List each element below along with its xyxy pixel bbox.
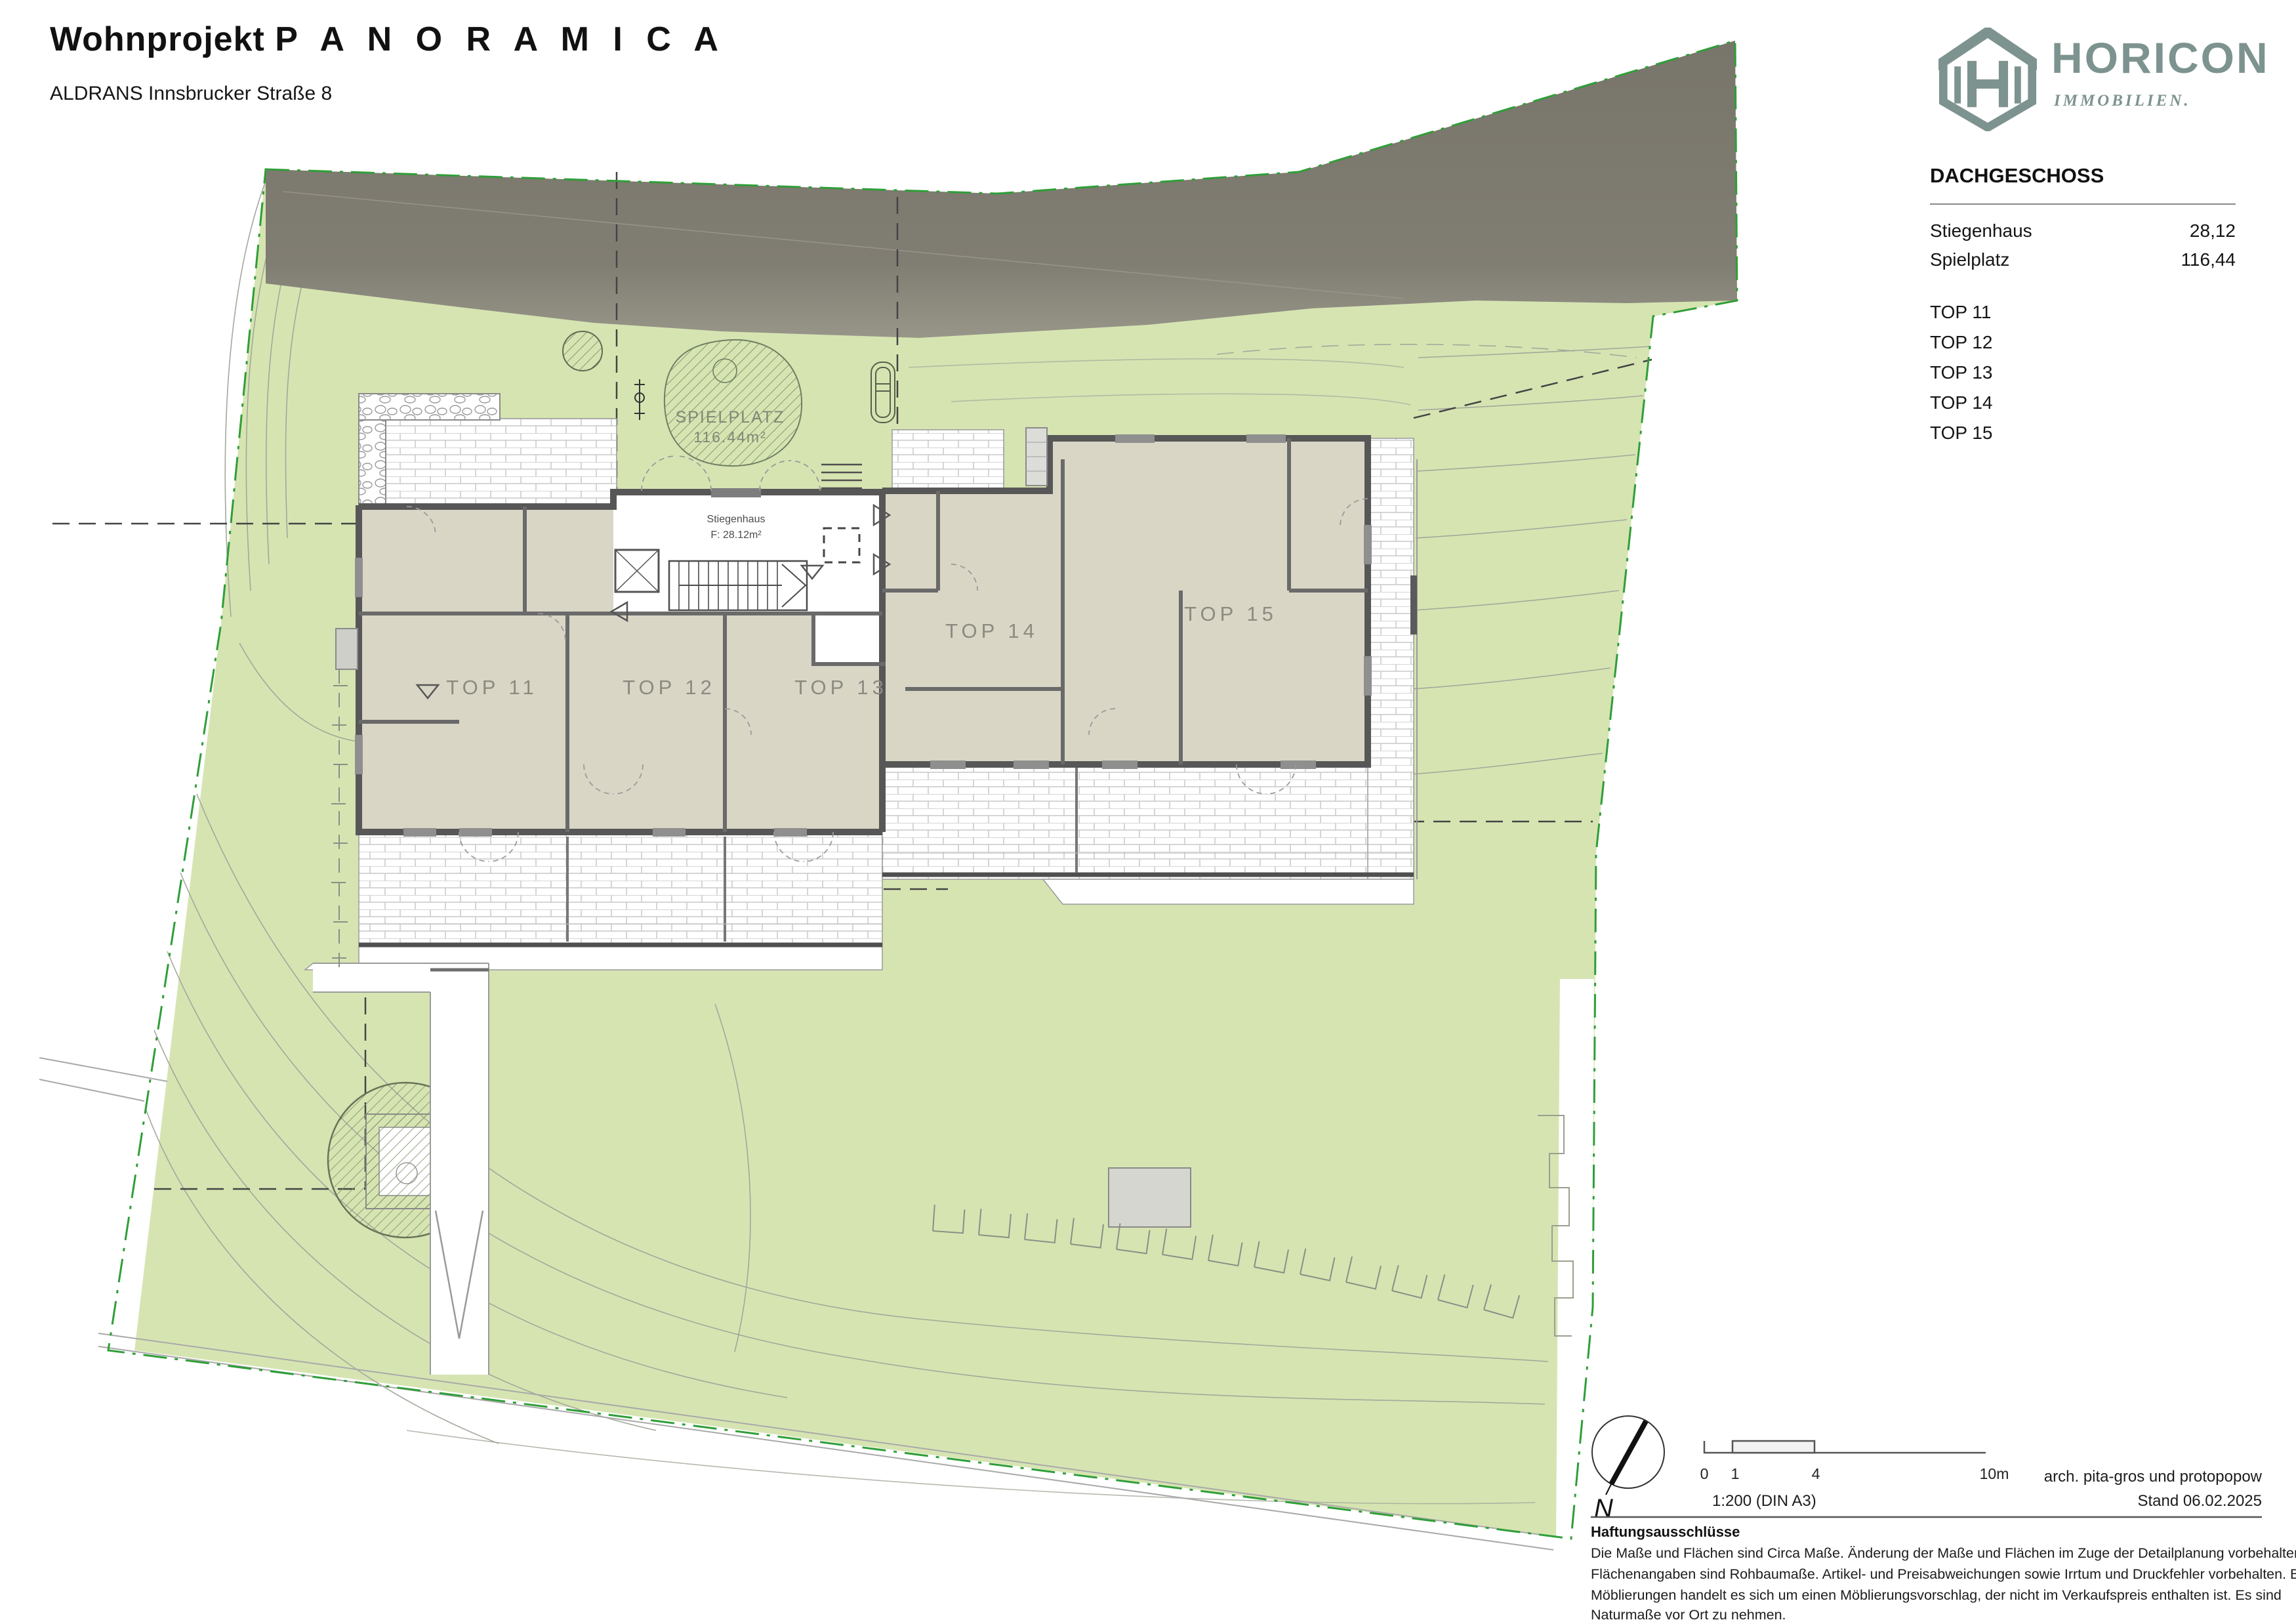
- stone-wall: [359, 394, 500, 420]
- apartment-label-top13: TOP 13: [794, 676, 888, 699]
- scale-ratio: 1:200 (DIN A3): [1712, 1492, 1816, 1510]
- spielplatz-area: 116.44m²: [693, 428, 766, 446]
- disclaimer-line: Die Maße und Flächen sind Circa Maße. Än…: [1591, 1545, 2296, 1561]
- disclaimer-text: Die Maße und Flächen sind Circa Maße. Än…: [1591, 1545, 2296, 1623]
- scale-bar: 0 1 4 10m: [1700, 1441, 2009, 1482]
- vent-grille-icon: [1026, 428, 1047, 486]
- apartment-label-top11: TOP 11: [446, 676, 537, 699]
- playground-icon: [665, 340, 802, 466]
- stairwell-corridor: [813, 614, 886, 664]
- spielplatz-label: SPIELPLATZ: [676, 408, 785, 427]
- scale-tick-4: 4: [1812, 1465, 1820, 1482]
- plan-date: Stand 06.02.2025: [2137, 1492, 2262, 1510]
- apartment-label-top12: TOP 12: [623, 676, 716, 699]
- apartment-label-top14: TOP 14: [945, 619, 1038, 642]
- east-path: [1556, 979, 1594, 1541]
- disclaimer-line: Möblierungen handelt es sich um einen Mö…: [1591, 1587, 2282, 1603]
- scale-tick-10m: 10m: [1980, 1465, 2009, 1482]
- disclaimer-line: Naturmaße vor Ort zu nehmen.: [1591, 1607, 1786, 1623]
- scale-tick-0: 0: [1700, 1465, 1709, 1482]
- architect-credit: arch. pita-gros und protopopow: [2044, 1468, 2263, 1486]
- balcony-pad: [336, 629, 358, 669]
- disclaimer-title: Haftungsausschlüsse: [1591, 1524, 1740, 1540]
- stiegenhaus-area: F: 28.12m²: [710, 530, 762, 541]
- north-arrow-icon: [1592, 1416, 1664, 1495]
- utility-pad: [1109, 1168, 1191, 1227]
- wall-fragment: [1410, 575, 1417, 635]
- street-area: [266, 41, 1737, 338]
- tree-icon: [563, 331, 602, 371]
- disclaimer-line: Flächenangaben sind Rohbaumaße. Artikel-…: [1591, 1566, 2296, 1582]
- stiegenhaus-label: Stiegenhaus: [707, 514, 766, 525]
- north-label: N: [1594, 1494, 1613, 1523]
- floor-plan: TOP 11 TOP 12 TOP 13 TOP 14 TOP 15 SPIEL…: [0, 0, 2296, 1624]
- apartment-label-top15: TOP 15: [1184, 602, 1277, 625]
- plan-sheet: Wohnprojekt P A N O R A M I C A ALDRANS …: [0, 0, 2296, 1624]
- elevator-icon: [615, 550, 659, 592]
- scale-tick-1: 1: [1731, 1465, 1740, 1482]
